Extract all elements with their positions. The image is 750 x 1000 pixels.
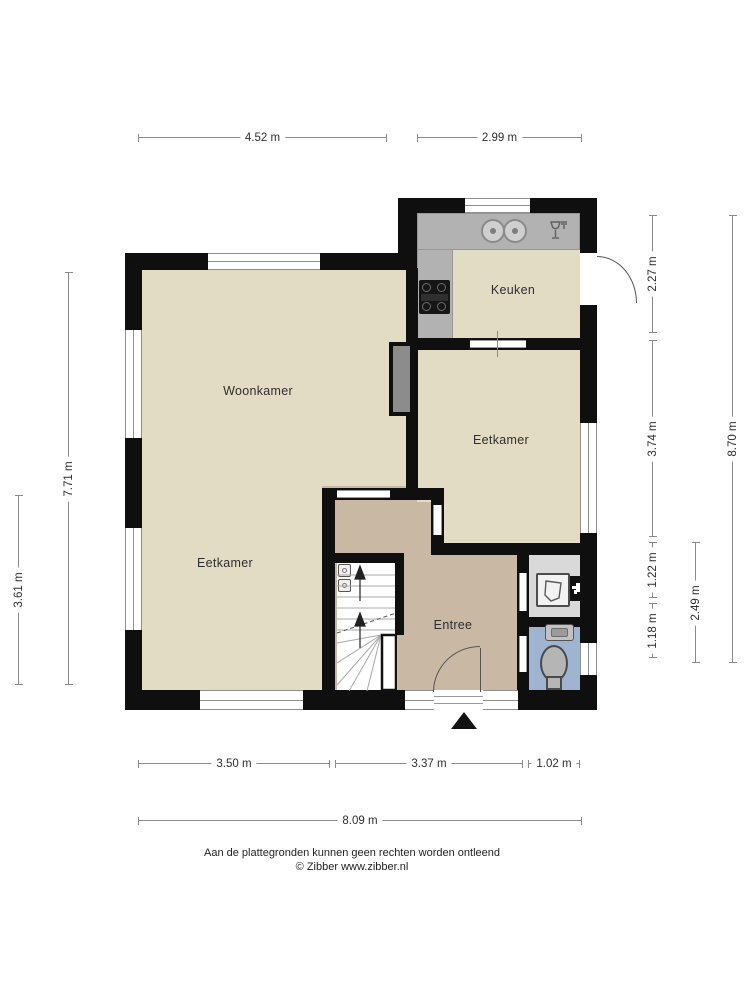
- floor-eetkamer-links: [142, 488, 322, 692]
- dimension-right-1: 2.27 m: [652, 215, 653, 333]
- room-label-eetkamer-links: Eetkamer: [197, 556, 253, 570]
- dimension-right-2: 3.74 m: [652, 340, 653, 537]
- dimension-label: 1.18 m: [646, 608, 660, 653]
- tap-icon: [570, 576, 583, 601]
- dimension-right-total: 8.70 m: [732, 215, 733, 663]
- toilet-tank-icon: [546, 676, 562, 690]
- floor-eetkamer-rechts: [417, 348, 581, 502]
- dimension-left-inner: 7.71 m: [68, 272, 69, 685]
- dimension-bottom-1: 3.50 m: [138, 763, 330, 764]
- dimension-label: 2.49 m: [689, 580, 703, 625]
- dimension-label: 7.71 m: [62, 456, 76, 501]
- front-door-sidelight-left: [405, 690, 434, 710]
- dimension-right-3: 1.22 m: [652, 542, 653, 598]
- window-south-eetkamer: [200, 690, 303, 710]
- copyright-text: © Zibber www.zibber.nl: [0, 861, 704, 873]
- dimension-label: 3.37 m: [406, 758, 451, 770]
- dimension-label: 8.09 m: [337, 815, 382, 827]
- dimension-label: 3.50 m: [211, 758, 256, 770]
- dimension-bottom-total: 8.09 m: [138, 820, 582, 821]
- opening-keuken-eetkamer: [470, 340, 526, 348]
- floor-woonkamer: [142, 268, 406, 490]
- stairs-icon: [337, 563, 398, 692]
- kitchen-door-swing: [597, 256, 637, 303]
- entrance-arrow-icon: [451, 712, 477, 729]
- dimension-label: 2.27 m: [646, 251, 660, 296]
- dimension-label: 1.22 m: [646, 547, 660, 592]
- disclaimer-text: Aan de plattegronden kunnen geen rechten…: [0, 847, 704, 859]
- dishwasher-icon: [544, 217, 572, 245]
- window-east-eetkamer: [580, 423, 597, 533]
- hand-basin-icon: [545, 624, 574, 641]
- front-door-threshold: [434, 696, 483, 704]
- dimension-top-right: 2.99 m: [417, 137, 582, 138]
- opening-woonkamer-entree: [337, 490, 390, 498]
- room-label-entree: Entree: [434, 618, 473, 632]
- chimney: [389, 342, 414, 416]
- window-west-upper: [125, 330, 142, 438]
- wall-stairs-north: [330, 553, 404, 563]
- opening-tick: [497, 331, 498, 357]
- window-east-toilet: [580, 643, 597, 675]
- dimension-bottom-2: 3.37 m: [335, 763, 523, 764]
- opening-entree-eetkamer: [433, 505, 442, 535]
- window-west-lower: [125, 528, 142, 630]
- dimension-bottom-3: 1.02 m: [528, 763, 580, 764]
- sink-drain-icon: [490, 228, 496, 234]
- wall-entree-west: [322, 488, 335, 690]
- stove-icon: [419, 280, 450, 314]
- dimension-label: 1.02 m: [531, 758, 576, 770]
- dimension-label: 3.61 m: [12, 567, 26, 612]
- door-opening-toilet: [519, 636, 527, 672]
- floor-eetkamer-rechts-zuid: [443, 500, 580, 545]
- wall-eetkamer-south: [431, 543, 582, 555]
- room-label-keuken: Keuken: [491, 283, 535, 297]
- dimension-right-4: 1.18 m: [652, 603, 653, 658]
- kitchen-sink-icon: [503, 219, 527, 243]
- dimension-label: 3.74 m: [646, 416, 660, 461]
- dimension-right-mid: 2.49 m: [695, 542, 696, 663]
- kitchen-sink-icon: [481, 219, 505, 243]
- dimension-left-outer: 3.61 m: [18, 495, 19, 685]
- front-door-leaf: [480, 648, 481, 692]
- dimension-top-left: 4.52 m: [138, 137, 387, 138]
- door-opening-meterkast: [519, 573, 527, 611]
- window-woonkamer-north: [208, 253, 320, 270]
- window-keuken-north: [465, 198, 530, 213]
- wall-south: [125, 690, 597, 710]
- wall-west: [125, 253, 142, 710]
- boiler-icon: [536, 573, 570, 607]
- room-label-woonkamer: Woonkamer: [223, 384, 293, 398]
- floorplan-page: Woonkamer Keuken Eetkamer Eetkamer Entre…: [0, 0, 750, 1000]
- room-label-eetkamer-rechts: Eetkamer: [473, 433, 529, 447]
- kitchen-door-zone: [580, 253, 597, 305]
- dimension-label: 4.52 m: [240, 132, 285, 144]
- front-door-sidelight-right: [483, 690, 518, 710]
- sink-drain-icon: [512, 228, 518, 234]
- dimension-label: 8.70 m: [726, 416, 740, 461]
- dimension-label: 2.99 m: [477, 132, 522, 144]
